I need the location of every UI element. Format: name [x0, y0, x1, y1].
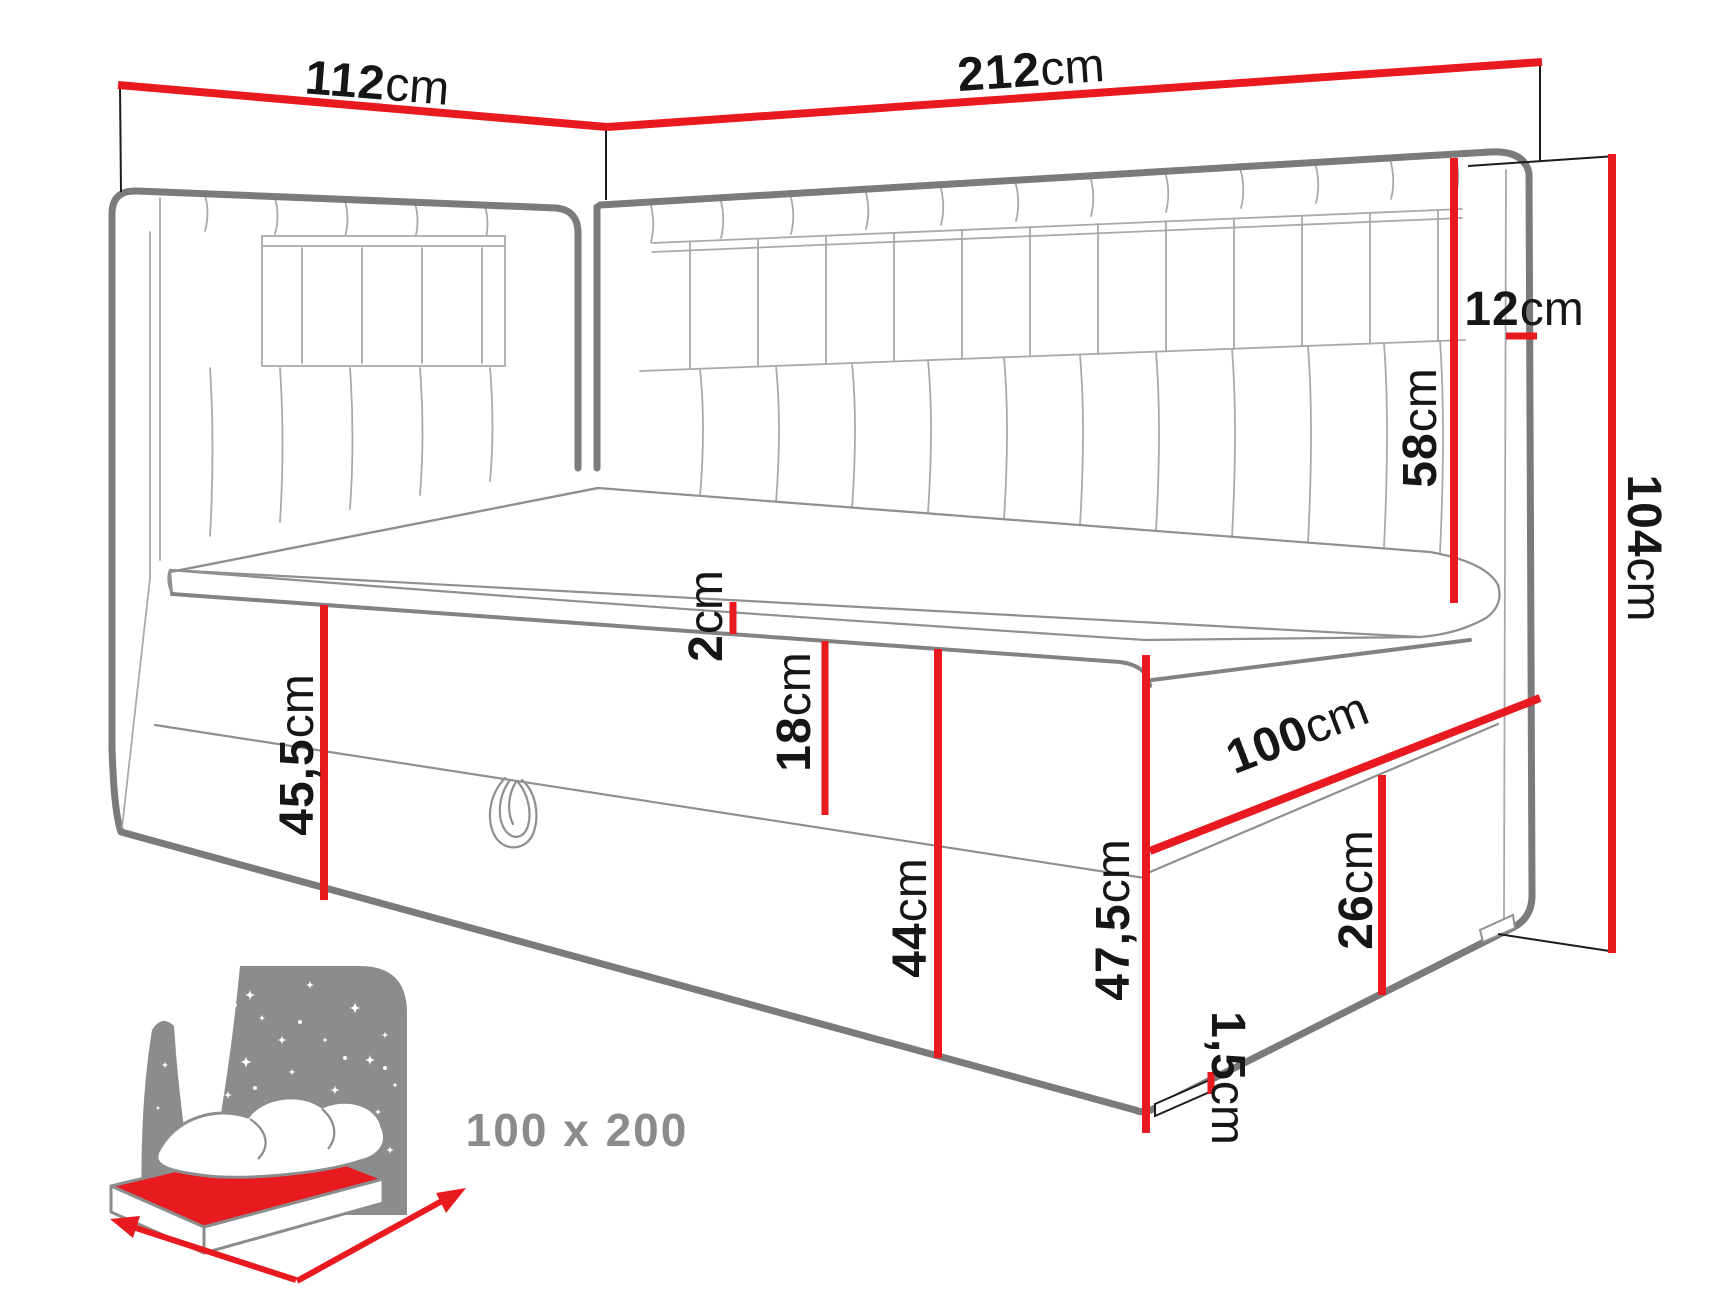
size-badge: 100 x 200	[466, 1104, 689, 1156]
dim-label-18: 18cm	[768, 652, 821, 771]
dim-label-104: 104cm	[1617, 474, 1670, 621]
dim-label-26: 26cm	[1330, 830, 1383, 949]
icon-blanket	[157, 1098, 385, 1177]
dim-label-475: 47,5cm	[1087, 839, 1140, 1000]
dim-label-12: 12cm	[1464, 283, 1583, 336]
dim-label-212: 212cm	[956, 39, 1106, 102]
headboard-left-panel	[262, 236, 505, 366]
dim-label-44: 44cm	[884, 858, 937, 977]
dimension-diagram: 112cm 212cm 12cm 58cm 104cm 2cm 18cm 45,…	[0, 0, 1726, 1295]
size-icon: 100 x 200	[110, 966, 688, 1281]
dim-label-455: 45,5cm	[271, 674, 324, 835]
dim-label-15: 1,5cm	[1201, 1011, 1254, 1145]
bed-drawing: 112cm 212cm 12cm 58cm 104cm 2cm 18cm 45,…	[0, 0, 1726, 1295]
ext-line-left	[120, 85, 121, 192]
dim-label-58: 58cm	[1394, 368, 1447, 487]
ext-line-height-bottom	[1498, 934, 1616, 952]
dim-label-2: 2cm	[680, 570, 733, 662]
